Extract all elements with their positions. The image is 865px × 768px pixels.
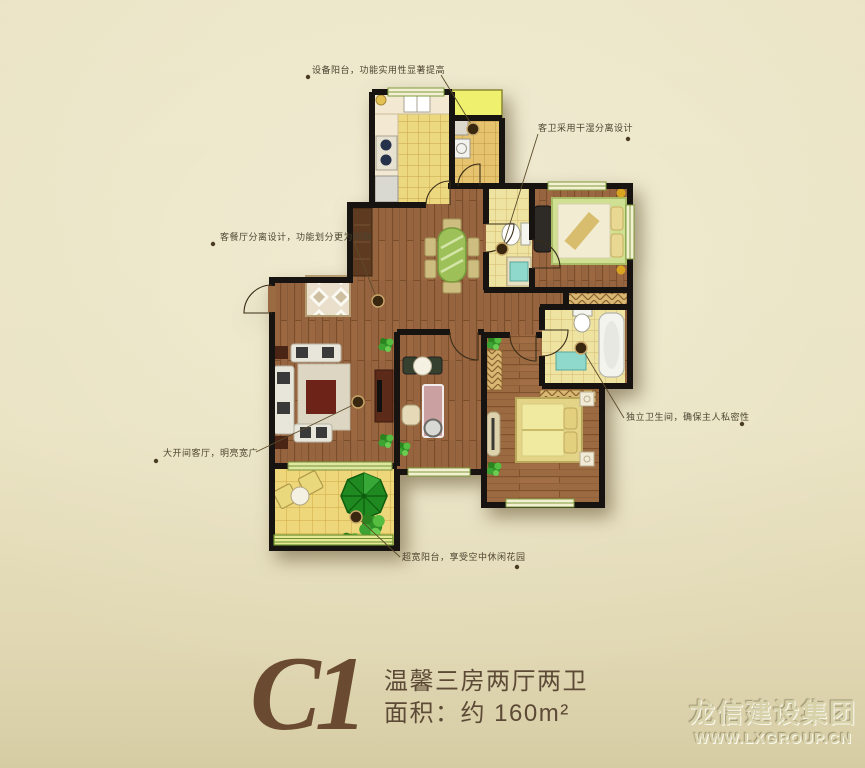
study-window [408,468,470,476]
floor-plan [244,88,634,549]
watermark-website: WWW.LXGROUP.CN [689,730,857,748]
side-chair [402,405,420,425]
balcony-slider [288,462,392,470]
watermark: 龙信建设集团 WWW.LXGROUP.CN [689,696,857,748]
plan-subtitle: 温馨三房两厅两卫 面积：约 160m² [384,666,588,730]
wardrobe [566,293,627,305]
dining-chair [443,282,461,293]
brochure-page: 设备阳台，功能实用性显著提高 客卫采用干湿分离设计 客餐厅分离设计，功能划分更为… [0,0,865,768]
entry-door-gap [268,286,276,312]
floor-plan-canvas [0,0,865,768]
side-table [275,436,288,449]
kitchen-window [388,88,444,96]
equipment-balcony [452,90,502,118]
watermark-company: 龙信建设集团 [689,696,857,730]
bedroom-2-side-window [626,205,634,259]
pillow [611,207,623,230]
washer [453,139,470,158]
plan-code: C1 [250,644,362,744]
pillow [611,234,623,257]
annotation-master-bathroom: 独立卫生间，确保主人私密性 [626,411,750,423]
patio-table [291,487,309,505]
annotation-wide-balcony: 超宽阳台，享受空中休闲花园 [402,551,526,563]
round-table [414,357,432,375]
nightstand [580,392,594,406]
cushion [617,266,626,275]
plan-area-text: 面积：约 160m² [384,698,588,730]
nightstand [580,452,594,466]
entry-door [244,285,272,313]
annotation-guest-bathroom: 客卫采用干湿分离设计 [538,122,633,134]
office-chair [425,420,442,437]
bedroom-2-window [548,182,606,190]
dining-chair [468,238,479,256]
dining-chair [425,260,436,278]
pillow [564,408,577,429]
cushion [617,189,626,198]
umbrella [341,473,387,519]
vanity [556,352,586,370]
dining-chair [468,260,479,278]
dining-chair [425,238,436,256]
balcony-railing [274,535,393,545]
toilet-tank [521,223,530,245]
plan-layout-text: 温馨三房两厅两卫 [384,666,588,698]
bookshelf [487,350,502,390]
annotation-living-room: 大开间客厅，明亮宽广 [163,447,258,459]
basket [376,95,386,105]
fridge [375,176,398,202]
tv [377,380,382,412]
pillow [564,432,577,453]
bedroom-3-window [506,499,574,507]
side-table [275,346,288,359]
annotation-dining-living-split: 客餐厅分离设计，功能划分更为明确 [220,231,372,243]
toilet-bowl [574,314,590,332]
dresser [534,206,552,252]
annotation-equipment-balcony: 设备阳台，功能实用性显著提高 [312,64,445,76]
